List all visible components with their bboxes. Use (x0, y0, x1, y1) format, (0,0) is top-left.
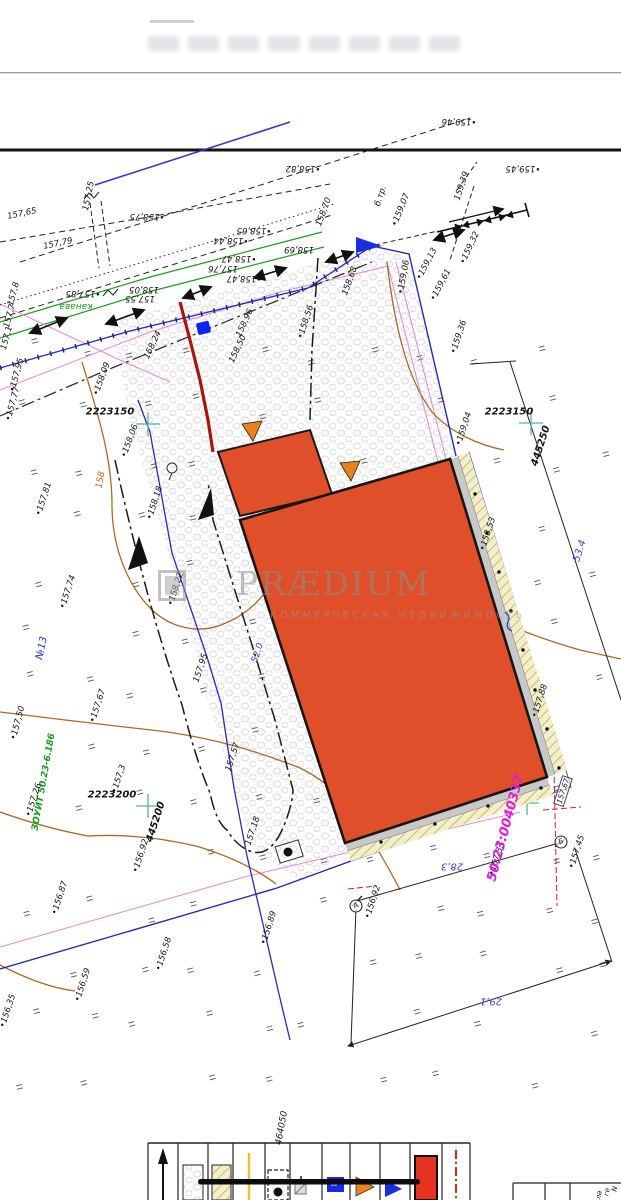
legend-thick-bar (198, 1179, 420, 1185)
legend-item-north-arrow (158, 1148, 168, 1200)
frame-line (0, 149, 621, 152)
legend-item-building-red-sample (415, 1156, 437, 1200)
legend-item-survey-marker (295, 1176, 306, 1194)
divider-line (0, 72, 621, 73)
topographic-site-plan: •159,46•158,82•159,45159,39157,25157,651… (0, 0, 621, 1200)
legend-strip (148, 1143, 470, 1200)
overhead-line (437, 203, 529, 232)
blue-reference-line (95, 122, 290, 185)
site-plan-svg (0, 0, 621, 1200)
coordinate-table-fragment (513, 1183, 621, 1200)
legend-item-well-in-pit (268, 1170, 288, 1200)
